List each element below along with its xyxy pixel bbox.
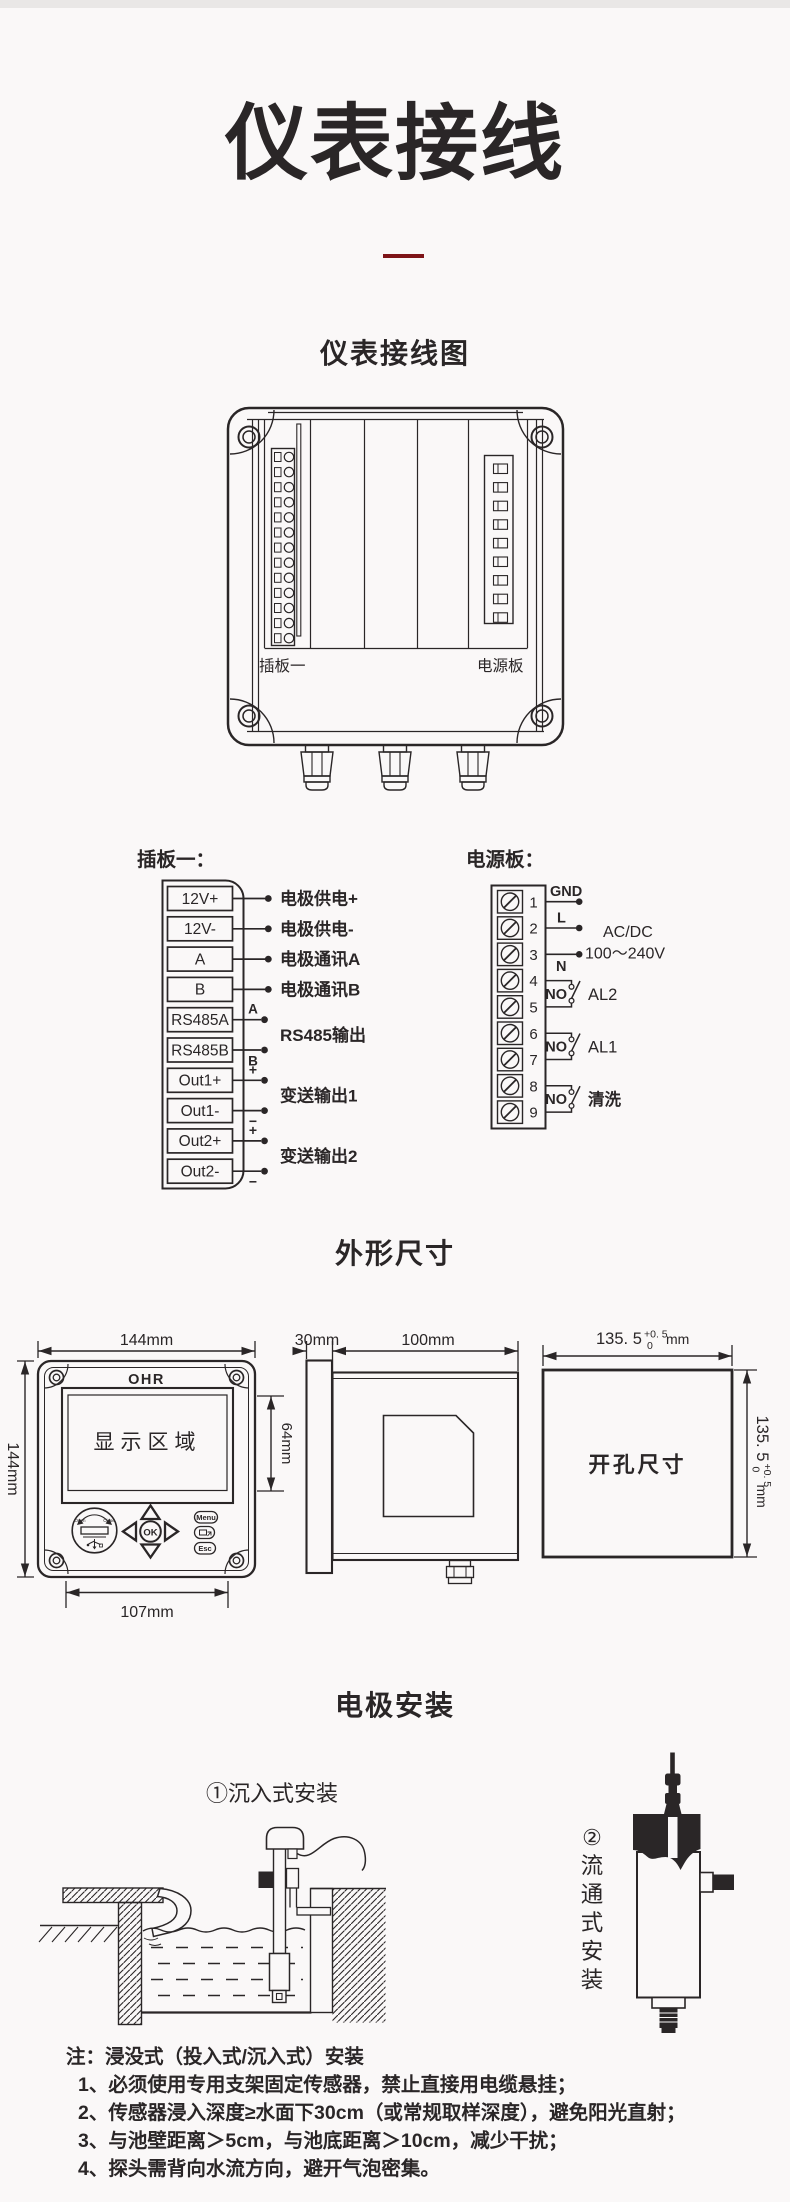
- page-icon-button: [195, 1527, 215, 1539]
- svg-text:OK: OK: [143, 1528, 157, 1539]
- svg-text:mm: mm: [754, 1485, 770, 1508]
- dimension-drawings: 144mm 144mm OHR 显示区域 64mm: [0, 1320, 790, 1625]
- svg-text:Esc: Esc: [198, 1544, 211, 1553]
- svg-text:7: 7: [529, 1052, 537, 1069]
- cutout-width-base: 135. 5: [596, 1330, 642, 1348]
- gnd-label: GND: [550, 884, 582, 900]
- svg-text:3: 3: [529, 947, 537, 964]
- note-line: 2、传感器浸入深度≥水面下30cm（或常规取样深度），避免阳光直射；: [78, 2096, 686, 2125]
- svg-text:Out1-: Out1-: [181, 1103, 220, 1120]
- power-wiring-diagram: 电源板： 1 2 3 4 5 6 7 8 9 GND L N AC/DC 100…: [455, 840, 715, 1170]
- svg-text:12V-: 12V-: [184, 921, 216, 938]
- conn-label: 电极通讯A: [280, 949, 360, 969]
- power-slot-label: 电源板: [477, 657, 524, 675]
- wash-label: 清洗: [588, 1089, 622, 1109]
- electrode-cap: [267, 1828, 304, 1850]
- display-area-label: 显示区域: [94, 1430, 202, 1454]
- svg-text:NO: NO: [545, 987, 567, 1003]
- section-heading-install: 电极安装: [0, 1684, 790, 1724]
- power-terminal-rows: 1 2 3 4 5 6 7 8 9: [498, 891, 538, 1124]
- svg-text:通: 通: [581, 1882, 604, 1907]
- brand-logo: OHR: [128, 1372, 165, 1388]
- svg-text:Menu: Menu: [196, 1513, 216, 1522]
- conn-label: 变送输出1: [280, 1086, 357, 1106]
- device-slot: [668, 1817, 678, 1858]
- acdc-label: AC/DC: [603, 924, 653, 941]
- usb-cover-icon: Open Close: [72, 1508, 117, 1553]
- conn-label: 变送输出2: [280, 1146, 357, 1166]
- svg-text:B: B: [195, 982, 205, 999]
- flow-install-drawing: [633, 1753, 734, 2034]
- top-strip: [0, 0, 790, 8]
- electrode-tip: [273, 1991, 287, 2003]
- flow-install-label: ② 流 通 式 安 装: [581, 1825, 604, 1993]
- relay-no-switch: NO AL2: [545, 981, 617, 1007]
- board1-heading: 插板一：: [137, 848, 215, 871]
- electrode-bracket-arm: [297, 1908, 331, 1916]
- conn-label: 电极供电+: [280, 889, 358, 909]
- title-divider: [383, 254, 424, 258]
- pin-label: −: [249, 1174, 257, 1190]
- relay-no-switch: NO 清洗: [545, 1086, 621, 1112]
- svg-text:9: 9: [529, 1105, 537, 1122]
- svg-text:8: 8: [529, 1078, 537, 1095]
- cutout-width-sup: +0. 5: [644, 1329, 668, 1341]
- power-connector: [485, 456, 514, 624]
- notes-title: 注：浸没式（投入式/沉入式）安装: [66, 2040, 364, 2069]
- live-label: L: [557, 911, 566, 927]
- power-heading: 电源板：: [466, 848, 544, 871]
- svg-text:4: 4: [529, 973, 537, 990]
- cable-gland-icon: [301, 745, 489, 790]
- svg-text:RS485B: RS485B: [171, 1042, 229, 1059]
- device-body: [637, 1852, 700, 1998]
- dim-width-label: 144mm: [120, 1332, 173, 1349]
- al1-label: AL1: [588, 1039, 617, 1057]
- page: 仪表接线 仪表接线图: [0, 0, 790, 2202]
- cutout-label: 开孔尺寸: [588, 1453, 686, 1477]
- pin-label: +: [249, 1062, 257, 1078]
- svg-text:②: ②: [582, 1825, 602, 1850]
- section-heading-dimensions: 外形尺寸: [0, 1232, 790, 1272]
- device-side-fitting: [713, 1875, 734, 1891]
- conn-label: RS485输出: [280, 1025, 366, 1045]
- pin-label: A: [248, 1002, 258, 1017]
- svg-text:Open: Open: [74, 1518, 86, 1523]
- electrode-cable: [297, 1837, 365, 1871]
- svg-text:安: 安: [581, 1939, 604, 1964]
- enclosure-drawing: 插板一 电源板: [200, 400, 620, 800]
- submerged-install-drawing: [39, 1828, 386, 2025]
- svg-text:RS485A: RS485A: [171, 1012, 229, 1029]
- svg-text:Close: Close: [103, 1518, 115, 1523]
- side-view: 30mm 100mm: [293, 1332, 518, 1584]
- svg-text:5: 5: [529, 1000, 537, 1017]
- note-line: 3、与池壁距离＞5cm，与池底距离＞10cm，减少干扰；: [78, 2124, 568, 2153]
- nav-arrow-buttons: OK: [123, 1506, 178, 1558]
- cutout-height-label: 135. 5 +0. 5 0 mm: [750, 1416, 774, 1508]
- dim-bottom-label: 107mm: [120, 1604, 173, 1621]
- svg-text:Out2+: Out2+: [179, 1133, 222, 1150]
- svg-text:135. 5: 135. 5: [753, 1416, 771, 1462]
- note-line: 1、必须使用专用支架固定传感器，禁止直接用电缆悬挂；: [78, 2068, 576, 2097]
- conn-label: 电极供电-: [280, 919, 354, 939]
- cutout-width-sub: 0: [647, 1340, 653, 1352]
- submerged-install-label: ①沉入式安装: [206, 1781, 338, 1806]
- page-title: 仪表接线: [0, 100, 790, 187]
- note-line: 4、探头需背向水流方向，避开气泡密集。: [78, 2152, 440, 2181]
- al2-label: AL2: [588, 986, 617, 1004]
- menu-button: Menu: [195, 1512, 218, 1524]
- conn-label: 电极通讯B: [280, 979, 360, 999]
- terminal-row: 12V+ 12V- A B RS485A RS485B Out1+ Out1- …: [168, 887, 233, 1184]
- electrode-clamp: [259, 1872, 274, 1889]
- board1-slot-label: 插板一: [259, 657, 306, 675]
- svg-text:2: 2: [529, 921, 537, 938]
- svg-text:0: 0: [750, 1467, 762, 1473]
- front-view: 144mm 144mm OHR 显示区域 64mm: [4, 1332, 295, 1621]
- relay-no-switch: NO AL1: [545, 1033, 617, 1059]
- cutout-width-unit: mm: [666, 1331, 689, 1347]
- installation-drawings: ①沉入式安装: [20, 1745, 780, 2045]
- panel-cutout: 135. 5 +0. 5 0 mm 开孔尺寸 135. 5 +0. 5 0 mm: [543, 1329, 773, 1558]
- svg-text:A: A: [195, 951, 206, 968]
- esc-button: Esc: [195, 1543, 216, 1555]
- neutral-label: N: [556, 959, 566, 975]
- svg-text:Out2-: Out2-: [181, 1164, 220, 1181]
- svg-text:式: 式: [581, 1911, 604, 1936]
- dim-bezel-label: 30mm: [295, 1332, 339, 1349]
- svg-text:12V+: 12V+: [182, 891, 219, 908]
- section-heading-wiring: 仪表接线图: [0, 332, 790, 372]
- svg-text:Out1+: Out1+: [179, 1073, 222, 1090]
- board1-connector: [272, 424, 301, 646]
- svg-text:流: 流: [581, 1854, 604, 1879]
- svg-text:6: 6: [529, 1026, 537, 1043]
- svg-text:NO: NO: [545, 1040, 567, 1056]
- side-gland-icon: [447, 1561, 474, 1584]
- corner-screw-icon: [239, 427, 553, 727]
- pin-label: +: [249, 1122, 257, 1138]
- dim-display-label: 64mm: [278, 1423, 295, 1465]
- svg-text:装: 装: [581, 1968, 604, 1993]
- dim-height-label: 144mm: [4, 1442, 21, 1495]
- voltage-label: 100～240V: [585, 946, 665, 963]
- svg-text:1: 1: [529, 894, 537, 911]
- svg-text:NO: NO: [545, 1092, 567, 1108]
- dim-depth-label: 100mm: [401, 1332, 454, 1349]
- board1-wiring-diagram: 插板一： 12V+ 12V- A B RS485A RS485B Out1+ O…: [90, 840, 410, 1200]
